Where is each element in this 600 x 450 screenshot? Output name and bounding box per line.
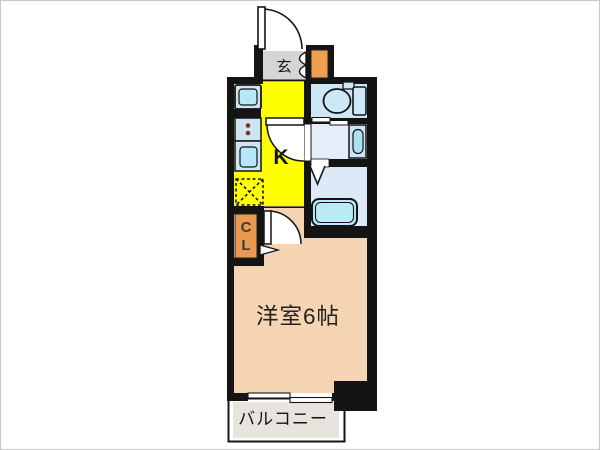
kitchen-sink-icon [240,147,257,167]
sliding-door-icon [312,118,330,123]
bath-doorway [311,159,329,167]
wall-segment [304,81,311,124]
entrance-door-icon [258,7,302,49]
wall-segment [332,393,337,401]
stove-icon [235,118,261,141]
wall-segment [227,77,254,84]
shoe-cabinet [311,50,328,78]
main-room-label: 洋室6帖 [256,304,340,329]
wall-segment [254,45,263,84]
toilet-icon [324,89,351,113]
entrance-step-line [263,80,306,82]
sliding-door-icon [330,121,348,126]
wall-segment-left [227,84,234,401]
wall-segment [304,226,367,238]
wall-segment [329,159,367,167]
wall-segment [227,258,264,266]
window-icon [248,393,332,403]
stove-burner-icon [246,123,251,128]
balcony-label: バルコニー [238,410,328,429]
floorplan-image: 玄 K C L 洋室6帖 バルコニー [0,0,600,450]
wall-segment [234,206,264,214]
washing-machine-pan-inner [239,89,257,105]
entrance-label: 玄 [276,59,292,76]
wall-segment-right [367,81,377,381]
washbasin-icon [353,130,363,154]
toilet-tank [353,87,366,115]
stove-burner-icon [246,131,251,136]
closet-label-l: L [241,237,250,254]
doorway-line [264,207,304,209]
kitchen-label: K [273,146,288,169]
pillar [334,381,377,411]
wall-segment [234,393,248,401]
closet-label-c: C [241,219,252,236]
counter-divider-wall [234,109,261,118]
floorplan-svg: 玄 K C L 洋室6帖 バルコニー [1,1,599,449]
